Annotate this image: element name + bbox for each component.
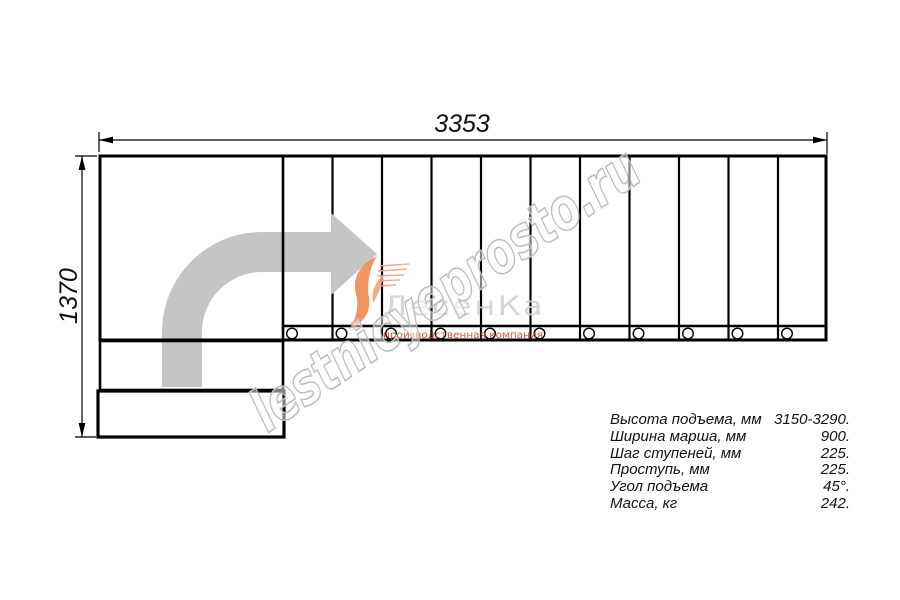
- staircase-plan-drawing: ЛесенКа производственная компания 3353 1…: [0, 0, 900, 600]
- spec-value: 242.: [821, 496, 850, 513]
- spec-label: Угол подъема: [610, 479, 708, 496]
- spec-row: Угол подъема 45°.: [610, 479, 850, 496]
- direction-arrow-head: [331, 213, 377, 295]
- spec-value: 3150-3290.: [774, 412, 850, 429]
- dimension-arrow-up-icon: [79, 156, 86, 170]
- support-hole: [782, 328, 793, 339]
- spec-label: Проступь, мм: [610, 462, 710, 479]
- dimension-arrow-down-icon: [79, 423, 86, 437]
- spec-label: Ширина марша, мм: [610, 429, 746, 446]
- spec-row: Шаг ступеней, мм 225.: [610, 446, 850, 463]
- specs-table: Высота подъема, мм 3150-3290. Ширина мар…: [610, 412, 850, 513]
- spec-value: 45°.: [823, 479, 850, 496]
- spec-value: 225.: [821, 462, 850, 479]
- support-hole: [683, 328, 694, 339]
- spec-row: Высота подъема, мм 3150-3290.: [610, 412, 850, 429]
- spec-value: 900.: [821, 429, 850, 446]
- spec-label: Шаг ступеней, мм: [610, 446, 741, 463]
- dimension-arrow-left-icon: [99, 137, 113, 144]
- spec-row: Проступь, мм 225.: [610, 462, 850, 479]
- support-hole: [287, 328, 298, 339]
- dimension-arrow-right-icon: [813, 137, 827, 144]
- support-hole: [633, 328, 644, 339]
- spec-value: 225.: [821, 446, 850, 463]
- spec-label: Высота подъема, мм: [610, 412, 762, 429]
- width-dimension-label: 3353: [434, 110, 490, 138]
- spec-row: Ширина марша, мм 900.: [610, 429, 850, 446]
- height-dimension-label: 1370: [55, 268, 83, 324]
- spec-row: Масса, кг 242.: [610, 496, 850, 513]
- spec-label: Масса, кг: [610, 496, 677, 513]
- support-hole: [584, 328, 595, 339]
- site-watermark: lestnicyeprosto.ru: [237, 134, 652, 445]
- support-hole: [732, 328, 743, 339]
